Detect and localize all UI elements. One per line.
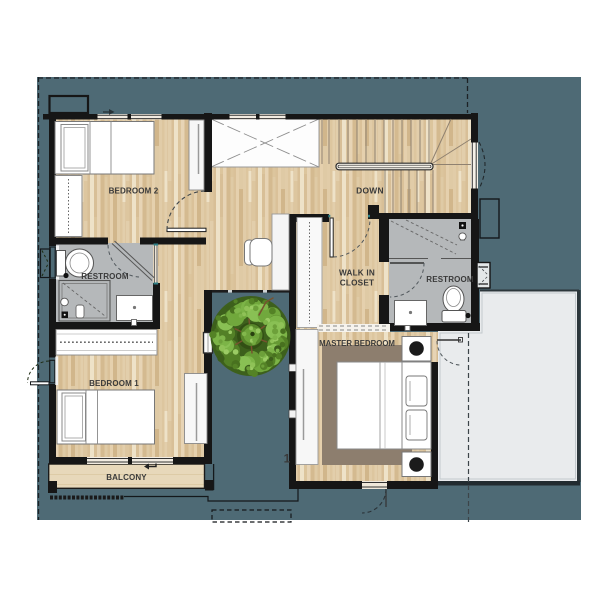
svg-text:BEDROOM 2: BEDROOM 2 [109,187,159,196]
svg-text:RESTROOM: RESTROOM [81,272,129,281]
svg-text:1: 1 [284,452,291,466]
svg-text:RESTROOM: RESTROOM [426,275,474,284]
svg-text:DOWN: DOWN [356,186,384,196]
svg-text:MASTER BEDROOM: MASTER BEDROOM [319,339,395,348]
svg-text:CLOSET: CLOSET [340,279,374,288]
svg-text:BALCONY: BALCONY [106,473,147,482]
svg-text:WALK IN: WALK IN [339,269,375,278]
svg-text:BEDROOM 1: BEDROOM 1 [89,379,139,388]
